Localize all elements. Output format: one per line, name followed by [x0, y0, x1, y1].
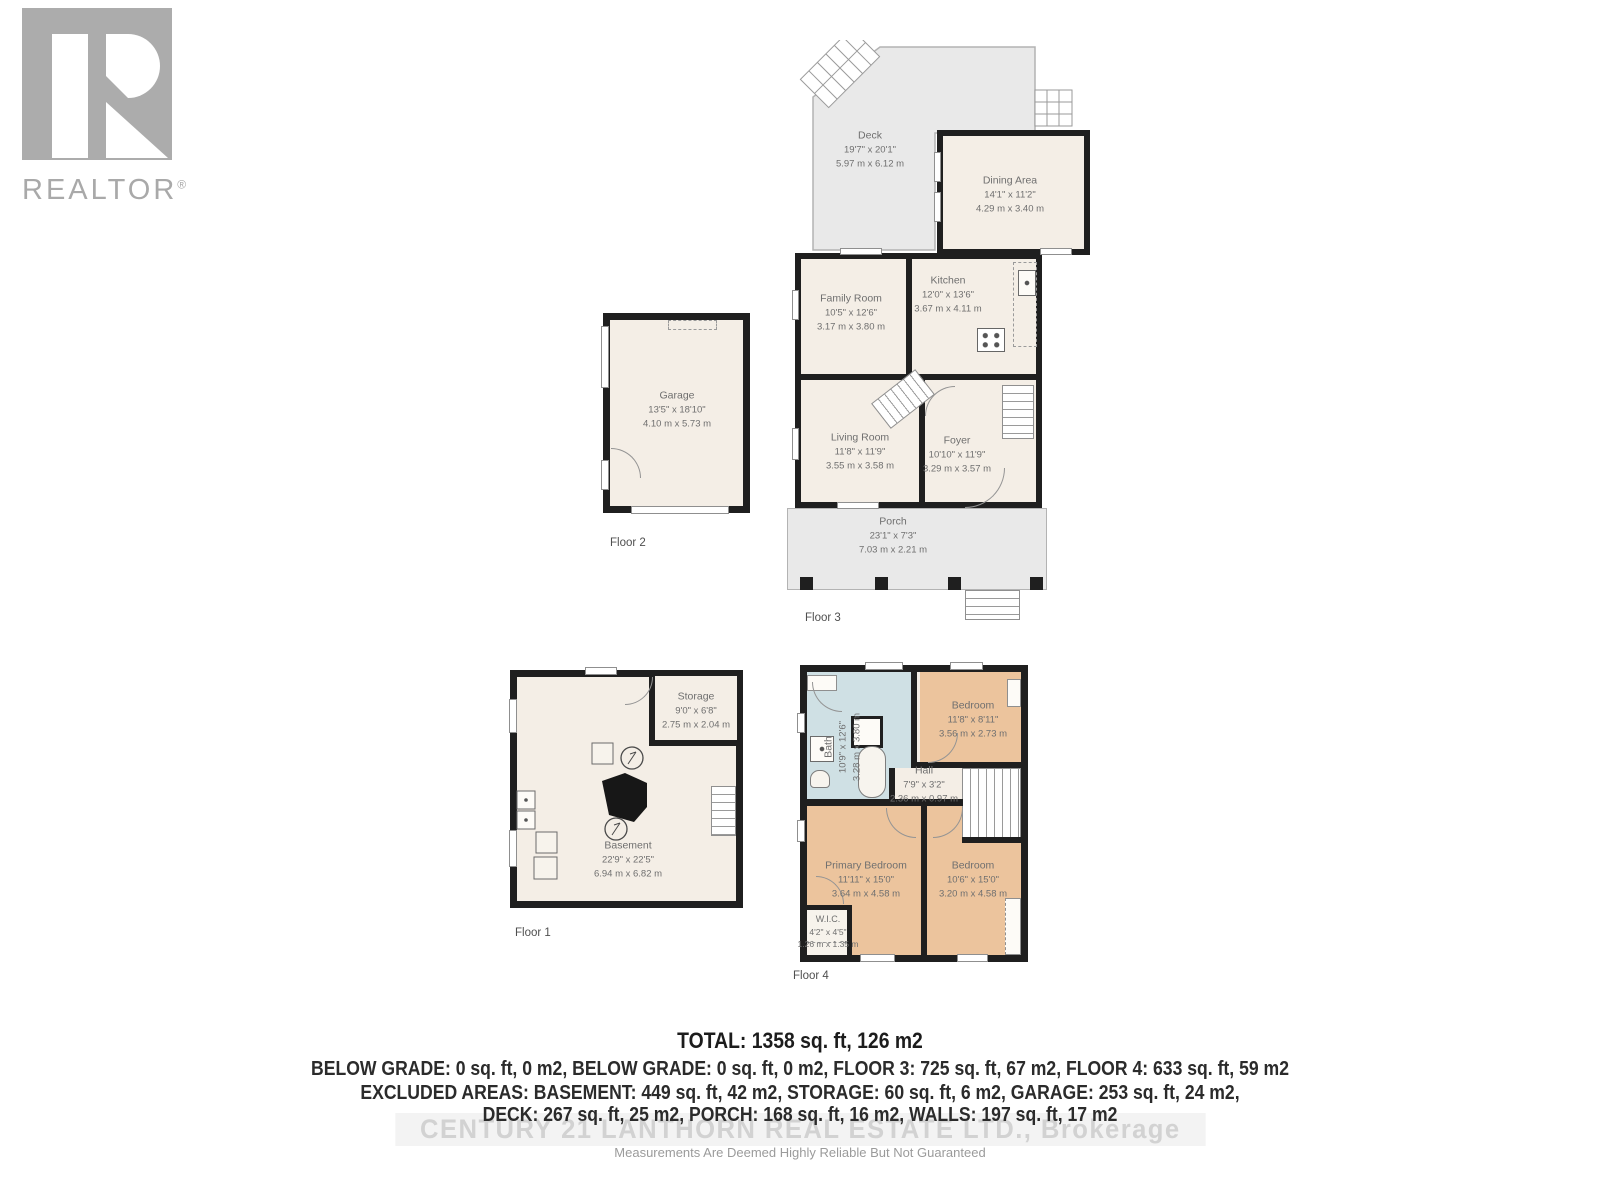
window-marker — [840, 248, 882, 255]
window-marker — [601, 460, 609, 490]
room-label-deck: Deck 19'7" x 20'1" 5.97 m x 6.12 m — [836, 129, 904, 172]
kitchen-sink-icon — [1018, 270, 1036, 296]
window-marker — [934, 192, 941, 222]
appliance-box — [534, 857, 557, 879]
window-marker — [934, 152, 941, 182]
floor1-plan: Storage 9'0" x 6'8" 2.75 m x 2.04 m Base… — [497, 655, 752, 955]
stove-icon — [977, 328, 1005, 352]
room-label-storage: Storage 9'0" x 6'8" 2.75 m x 2.04 m — [662, 690, 730, 733]
bedroom-closet — [1005, 898, 1021, 955]
room-label-foyer: Foyer 10'10" x 11'9" 3.29 m x 3.57 m — [923, 434, 991, 477]
front-steps — [965, 590, 1020, 620]
registered-mark: ® — [177, 177, 186, 191]
deck-side-stairs — [1035, 90, 1072, 126]
realtor-r-icon — [22, 8, 172, 163]
window-marker — [797, 713, 805, 733]
laundry-sink-icon — [517, 791, 535, 829]
room-label-bedroom-upper: Bedroom 11'8" x 8'11" 3.56 m x 2.73 m — [939, 699, 1007, 742]
floor4-plan: Bath 10'9" x 12'6" 3.28 m x 3.80 m Bedro… — [788, 658, 1033, 988]
foyer-stairs — [1002, 385, 1034, 439]
floor4-stairs — [962, 768, 1021, 839]
window-marker — [950, 662, 983, 670]
appliance-box — [592, 743, 613, 764]
room-label-hall: Hall 7'9" x 3'2" 2.36 m x 0.97 m — [890, 764, 958, 807]
wall-segment — [962, 837, 1021, 843]
floor3-tag: Floor 3 — [805, 612, 841, 624]
summary-line3: EXCLUDED AREAS: BASEMENT: 449 sq. ft, 42… — [96, 1082, 1504, 1105]
summary-line4: DECK: 267 sq. ft, 25 m2, PORCH: 168 sq. … — [96, 1104, 1504, 1127]
porch-post — [875, 577, 888, 590]
summary-line2: BELOW GRADE: 0 sq. ft, 0 m2, BELOW GRADE… — [96, 1058, 1504, 1081]
window-marker — [509, 830, 517, 867]
window-marker — [792, 290, 799, 320]
floor4-tag: Floor 4 — [793, 970, 829, 982]
floor2-plan: Garage 13'5" x 18'10" 4.10 m x 5.73 m Fl… — [600, 310, 760, 555]
floor2-tag: Floor 2 — [610, 537, 646, 549]
porch-post — [948, 577, 961, 590]
window-marker — [957, 954, 988, 962]
room-label-wic: W.I.C. 4'2" x 4'5" 1.26 m x 1.35 m — [798, 913, 859, 951]
disclaimer-text: Measurements Are Deemed Highly Reliable … — [0, 1145, 1600, 1160]
window-marker — [792, 428, 799, 460]
porch-post — [1030, 577, 1043, 590]
room-label-kitchen: Kitchen 12'0" x 13'6" 3.67 m x 4.11 m — [914, 274, 981, 317]
summary-total: TOTAL: 1358 sq. ft, 126 m2 — [96, 1028, 1504, 1054]
room-label-bath: Bath 10'9" x 12'6" 3.28 m x 3.80 m — [822, 713, 865, 781]
garage-door-opening — [631, 506, 729, 514]
window-marker — [865, 662, 903, 670]
porch-post — [800, 577, 813, 590]
window-marker — [797, 820, 805, 842]
basement-stairs — [711, 786, 736, 836]
room-label-dining-area: Dining Area 14'1" x 11'2" 4.29 m x 3.40 … — [976, 174, 1044, 217]
room-label-basement: Basement 22'9" x 22'5" 6.94 m x 6.82 m — [594, 839, 662, 882]
window-marker — [585, 667, 617, 675]
bedroom-closet — [1007, 679, 1021, 707]
wall-segment — [921, 806, 927, 955]
water-heater-icon — [605, 818, 627, 840]
room-label-bedroom-lower: Bedroom 10'6" x 15'0" 3.20 m x 4.58 m — [939, 859, 1007, 902]
room-label-family-room: Family Room 10'5" x 12'6" 3.17 m x 3.80 … — [817, 292, 885, 335]
garage-ceiling-marker — [668, 320, 717, 330]
window-marker — [509, 699, 517, 733]
room-label-porch: Porch 23'1" x 7'3" 7.03 m x 2.21 m — [859, 515, 927, 558]
floorplan-canvas: REALTOR® — [0, 0, 1600, 1200]
room-label-garage: Garage 13'5" x 18'10" 4.10 m x 5.73 m — [643, 389, 711, 432]
window-marker — [860, 954, 895, 962]
floor1-tag: Floor 1 — [515, 927, 551, 939]
water-heater-icon — [621, 747, 643, 769]
window-marker — [837, 502, 879, 509]
window-marker — [1040, 248, 1072, 255]
realtor-logo: REALTOR® — [22, 8, 172, 207]
floor3-plan: Deck 19'7" x 20'1" 5.97 m x 6.12 m Dinin… — [785, 40, 1097, 638]
room-label-primary-bedroom: Primary Bedroom 11'11" x 15'0" 3.64 m x … — [825, 859, 907, 902]
wall-segment — [911, 672, 917, 768]
furnace-icon — [602, 773, 647, 822]
room-label-living-room: Living Room 11'8" x 11'9" 3.55 m x 3.58 … — [826, 431, 894, 474]
realtor-wordmark: REALTOR® — [22, 174, 172, 207]
appliance-box — [536, 832, 557, 853]
window-marker — [601, 326, 609, 388]
